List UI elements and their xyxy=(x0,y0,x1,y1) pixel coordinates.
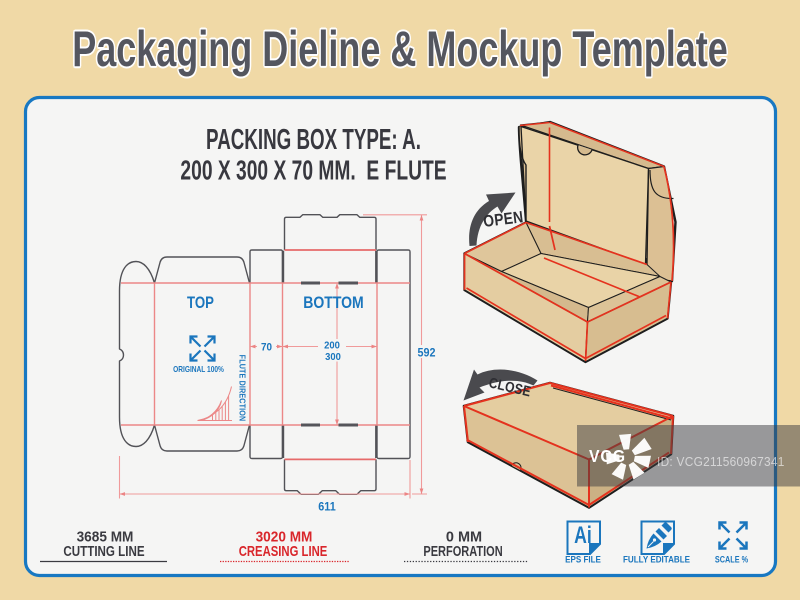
svg-text:EPS FILE: EPS FILE xyxy=(565,554,601,565)
svg-text:TOP: TOP xyxy=(187,294,214,313)
svg-text:CREASING LINE: CREASING LINE xyxy=(239,543,328,560)
svg-text:PACKING BOX TYPE: A.: PACKING BOX TYPE: A. xyxy=(206,124,421,156)
svg-text:FULLY EDITABLE: FULLY EDITABLE xyxy=(623,554,690,565)
svg-text:592: 592 xyxy=(417,347,435,360)
svg-text:70: 70 xyxy=(261,342,272,354)
svg-text:PERFORATION: PERFORATION xyxy=(423,542,502,559)
svg-text:BOTTOM: BOTTOM xyxy=(303,294,363,312)
svg-text:ID: VCG211560967341: ID: VCG211560967341 xyxy=(657,454,785,469)
svg-text:611: 611 xyxy=(318,501,336,514)
svg-text:FLUTE DIRECTION: FLUTE DIRECTION xyxy=(237,355,247,422)
svg-text:200: 200 xyxy=(324,340,340,352)
svg-text:SCALE %: SCALE % xyxy=(715,553,749,564)
svg-text:ORIGINAL 100%: ORIGINAL 100% xyxy=(173,364,224,374)
svg-text:Ai: Ai xyxy=(574,521,592,549)
svg-text:200 X 300 X 70 MM. E FLUTE: 200 X 300 X 70 MM. E FLUTE xyxy=(180,155,446,186)
svg-text:CUTTING LINE: CUTTING LINE xyxy=(63,543,144,560)
svg-text:300: 300 xyxy=(325,352,341,364)
